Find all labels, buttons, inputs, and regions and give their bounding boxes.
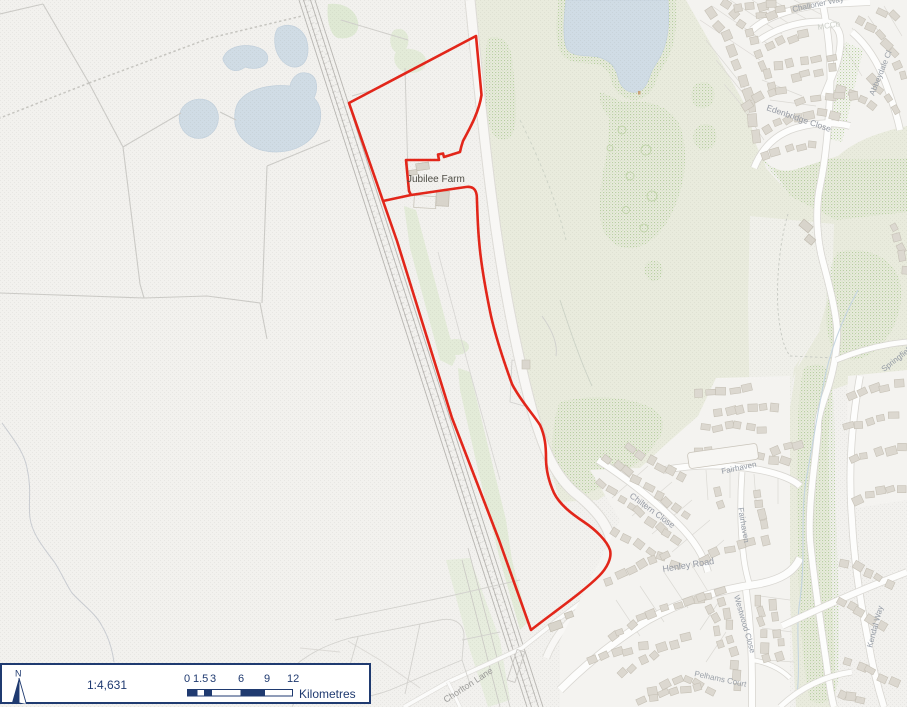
svg-text:N: N xyxy=(15,669,22,679)
svg-text:Jubilee Farm: Jubilee Farm xyxy=(407,174,465,185)
